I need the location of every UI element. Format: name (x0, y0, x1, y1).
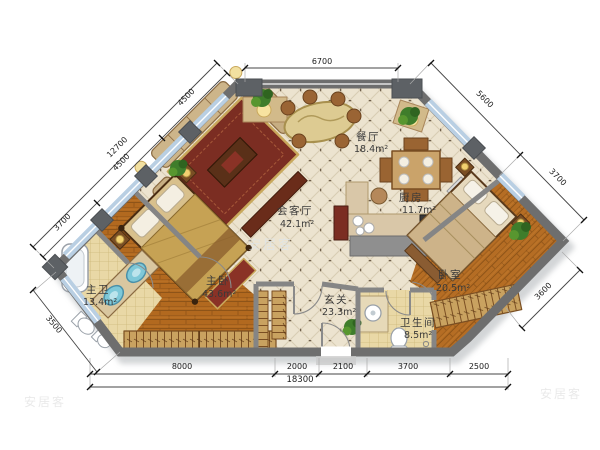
room-living-area: 42.1m² (280, 219, 314, 230)
dim-bottom-3700: 3700 (398, 362, 418, 371)
room-dining-name: 餐厅 (356, 130, 380, 143)
room-living-name: 会客厅 (277, 204, 313, 217)
dim-top: 6700 (312, 57, 332, 66)
room-bathroom-name: 卫生间 (400, 316, 436, 329)
floor-plan-canvas: 6700 5600 3700 3600 12700 4500 4500 3700… (0, 0, 600, 450)
dim-bottom-2100: 2100 (333, 362, 353, 371)
room-master-bath-name: 主卫 (86, 284, 110, 296)
dim-left-4500a: 4500 (176, 87, 197, 108)
room-bathroom-area: 8.5m² (404, 330, 432, 341)
dim-left-3700: 3700 (52, 212, 73, 233)
room-bedroom-area: 20.5m² (436, 283, 470, 294)
room-kitchen-area: 11.7m² (402, 205, 436, 216)
dim-right-5600: 5600 (474, 89, 495, 110)
dim-bottom-8000: 8000 (172, 362, 192, 371)
room-master-bath-area: 13.4m² (83, 297, 117, 308)
room-master-bedroom-name: 主卧 (206, 274, 230, 287)
watermark-bottom-right: 安居客 (540, 386, 582, 401)
dim-right-3700: 3700 (547, 167, 568, 188)
watermark-bottom-left: 安居客 (24, 394, 66, 409)
room-master-bedroom-area: 43.6m² (202, 289, 236, 300)
dim-left-3500: 3500 (44, 314, 64, 335)
watermark-center: 安居客 (248, 237, 293, 253)
floor-plan: 6700 5600 3700 3600 12700 4500 4500 3700… (0, 0, 600, 450)
room-foyer-name: 玄关 (324, 293, 348, 306)
room-foyer-area: 23.3m² (322, 307, 356, 318)
room-kitchen-name: 厨房 (399, 191, 423, 204)
room-dining-area: 18.4m² (354, 144, 388, 155)
dim-bottom-2000: 2000 (287, 362, 307, 371)
room-bedroom-name: 卧室 (438, 268, 462, 281)
dim-bottom-2500: 2500 (469, 362, 489, 371)
dim-bottom-total: 18300 (286, 375, 313, 385)
